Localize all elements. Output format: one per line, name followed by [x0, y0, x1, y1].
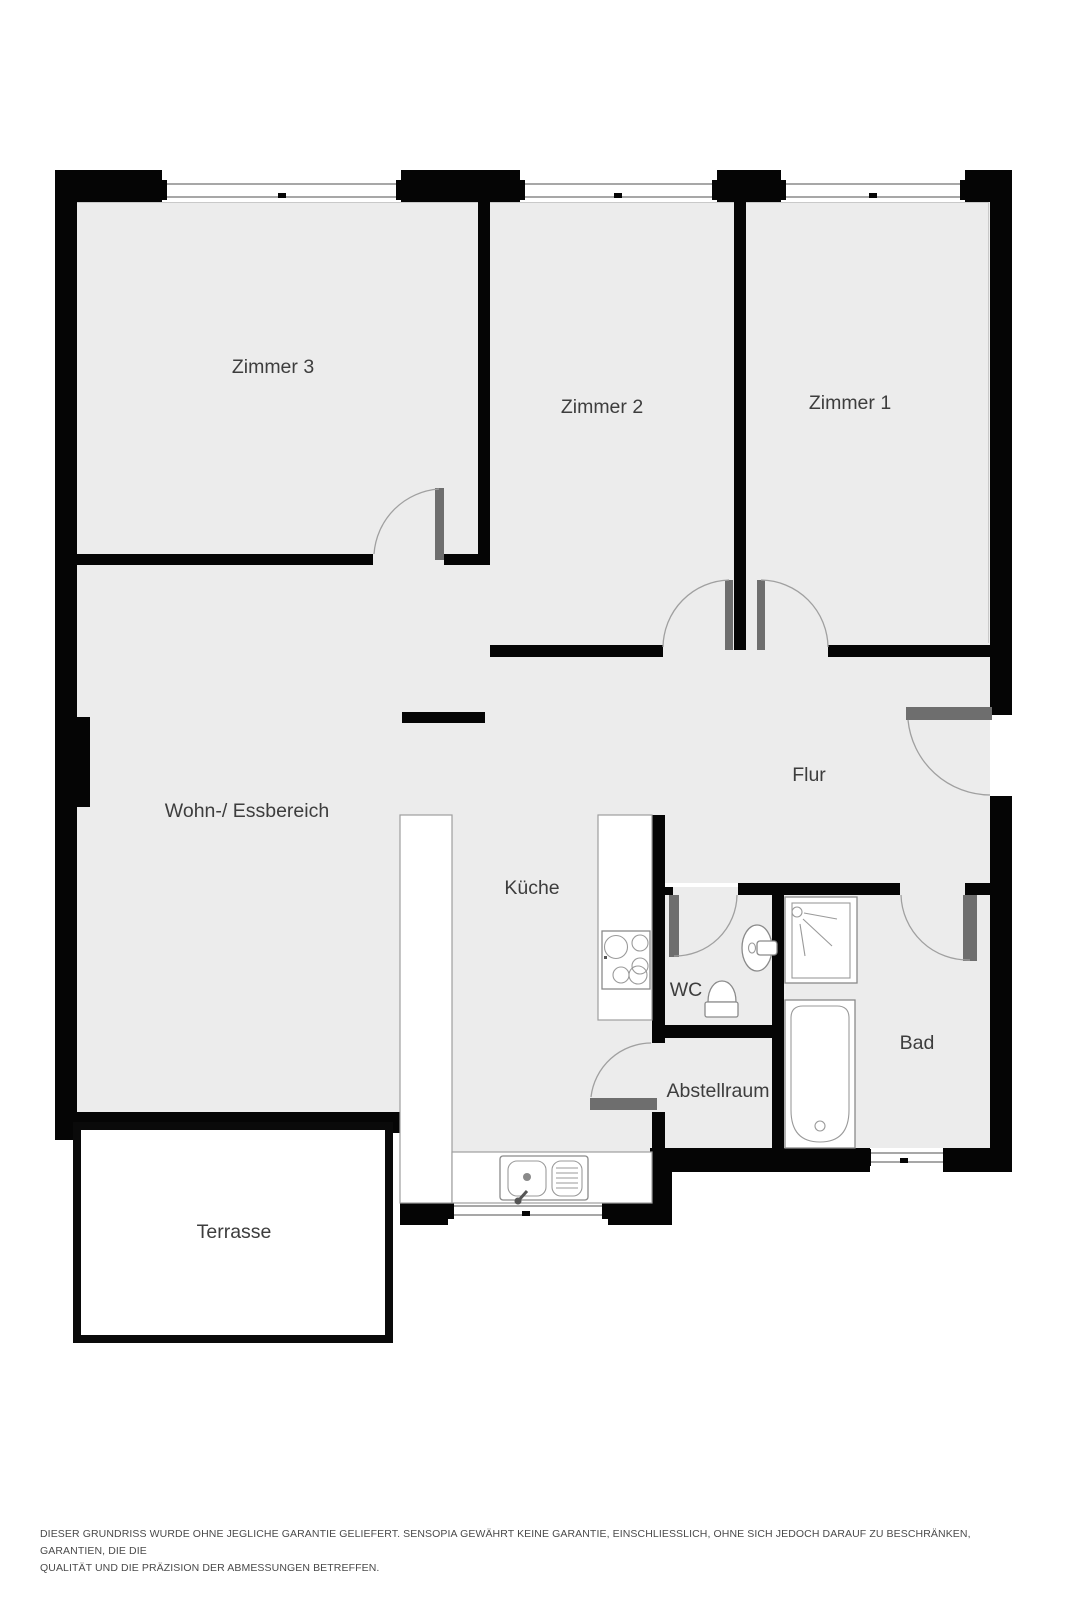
- wall-segment: [734, 202, 746, 650]
- wall-segment: [401, 170, 520, 202]
- window: [162, 176, 401, 202]
- disclaimer-line-2: QUALITÄT UND DIE PRÄZISION DER ABMESSUNG…: [40, 1560, 1030, 1577]
- wall-segment: [402, 712, 485, 723]
- cooktop-icon: [602, 931, 650, 989]
- room-label-wohn-essbereich: Wohn-/ Essbereich: [165, 800, 329, 822]
- wall-segment: [665, 887, 673, 895]
- room-label-wc: WC: [670, 979, 703, 1001]
- room-label-abstellraum: Abstellraum: [667, 1080, 770, 1102]
- window: [520, 176, 717, 202]
- wall-segment: [478, 202, 490, 565]
- room-label-zimmer-3: Zimmer 3: [232, 356, 314, 378]
- disclaimer-line-1: DIESER GRUNDRISS WURDE OHNE JEGLICHE GAR…: [40, 1526, 1030, 1560]
- wall-segment: [608, 1203, 654, 1225]
- corridor-area: [373, 554, 490, 712]
- room-label-zimmer-1: Zimmer 1: [809, 392, 891, 414]
- wall-segment: [943, 1148, 990, 1172]
- wall-segment: [55, 170, 77, 1140]
- window: [781, 176, 965, 202]
- room-zimmer-2: [490, 202, 734, 645]
- shower-icon: [785, 897, 857, 983]
- wall-segment: [652, 1148, 775, 1172]
- wall-segment: [828, 645, 990, 657]
- room-zimmer-1: [746, 202, 990, 645]
- wall-segment: [663, 1025, 775, 1038]
- wall-segment: [990, 796, 1012, 1172]
- window: [865, 1148, 949, 1172]
- disclaimer-text: DIESER GRUNDRISS WURDE OHNE JEGLICHE GAR…: [40, 1526, 1030, 1577]
- wall-segment: [77, 554, 373, 565]
- room-zimmer-3: [77, 202, 478, 554]
- wall-segment: [990, 170, 1012, 715]
- room-label-flur: Flur: [792, 764, 826, 786]
- wall-segment: [490, 645, 663, 657]
- wall-segment: [775, 1148, 870, 1172]
- wall-segment: [652, 815, 665, 1043]
- room-label-zimmer-2: Zimmer 2: [561, 396, 643, 418]
- kitchen-counter: [400, 815, 452, 1203]
- wall-segment: [772, 895, 784, 1148]
- wall-segment: [717, 170, 781, 202]
- wall-segment: [738, 883, 900, 895]
- wall-segment: [77, 717, 90, 807]
- wall-segment: [965, 883, 990, 895]
- floor-plan-canvas: Zimmer 3 Zimmer 2 Zimmer 1 Wohn-/ Essber…: [0, 0, 1067, 1600]
- bathtub-icon: [785, 1000, 855, 1148]
- room-label-terrasse: Terrasse: [197, 1221, 272, 1243]
- kitchen-sink-icon: [500, 1156, 588, 1205]
- room-label-bad: Bad: [900, 1032, 935, 1054]
- room-label-kueche: Küche: [504, 877, 559, 899]
- floor-plan-page: Zimmer 3 Zimmer 2 Zimmer 1 Wohn-/ Essber…: [0, 0, 1067, 1600]
- room-wohn-essbereich: [77, 564, 400, 1112]
